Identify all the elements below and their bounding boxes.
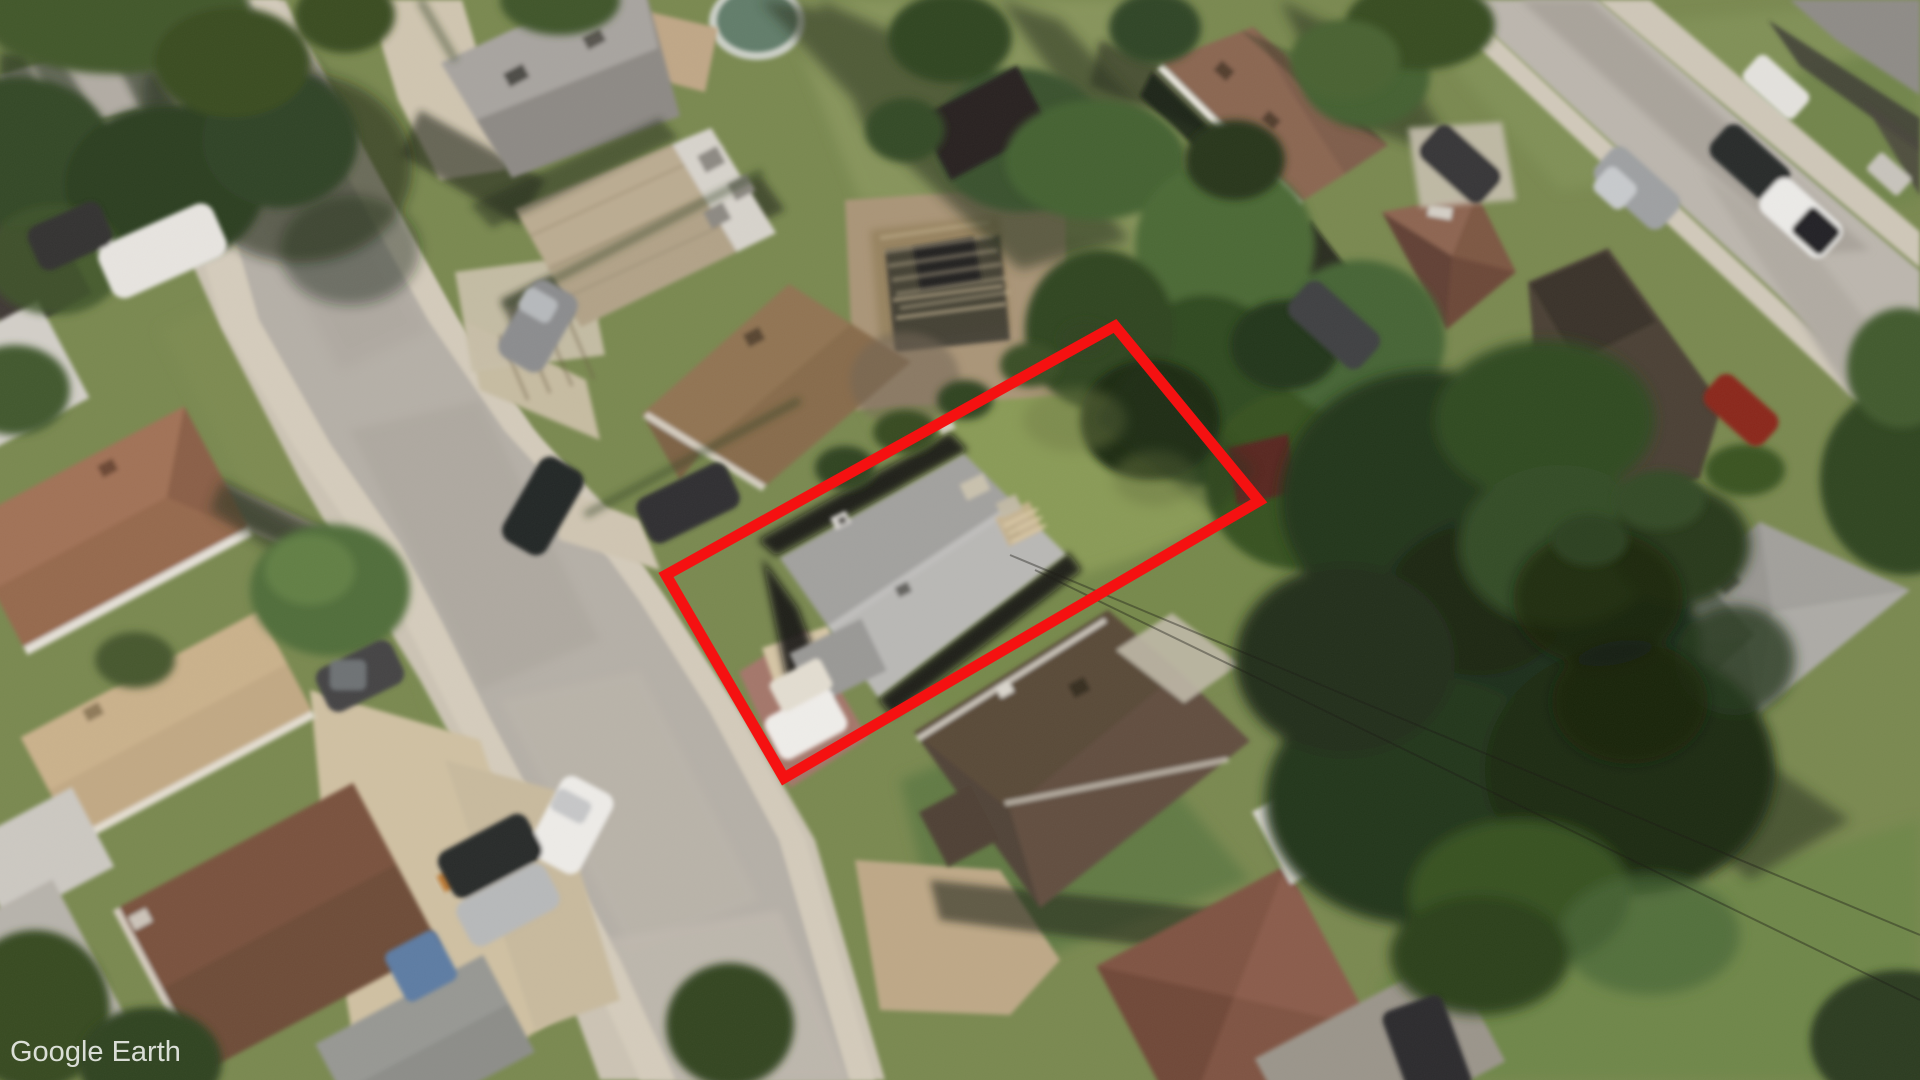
svg-text:Google Earth: Google Earth [10,1036,181,1068]
